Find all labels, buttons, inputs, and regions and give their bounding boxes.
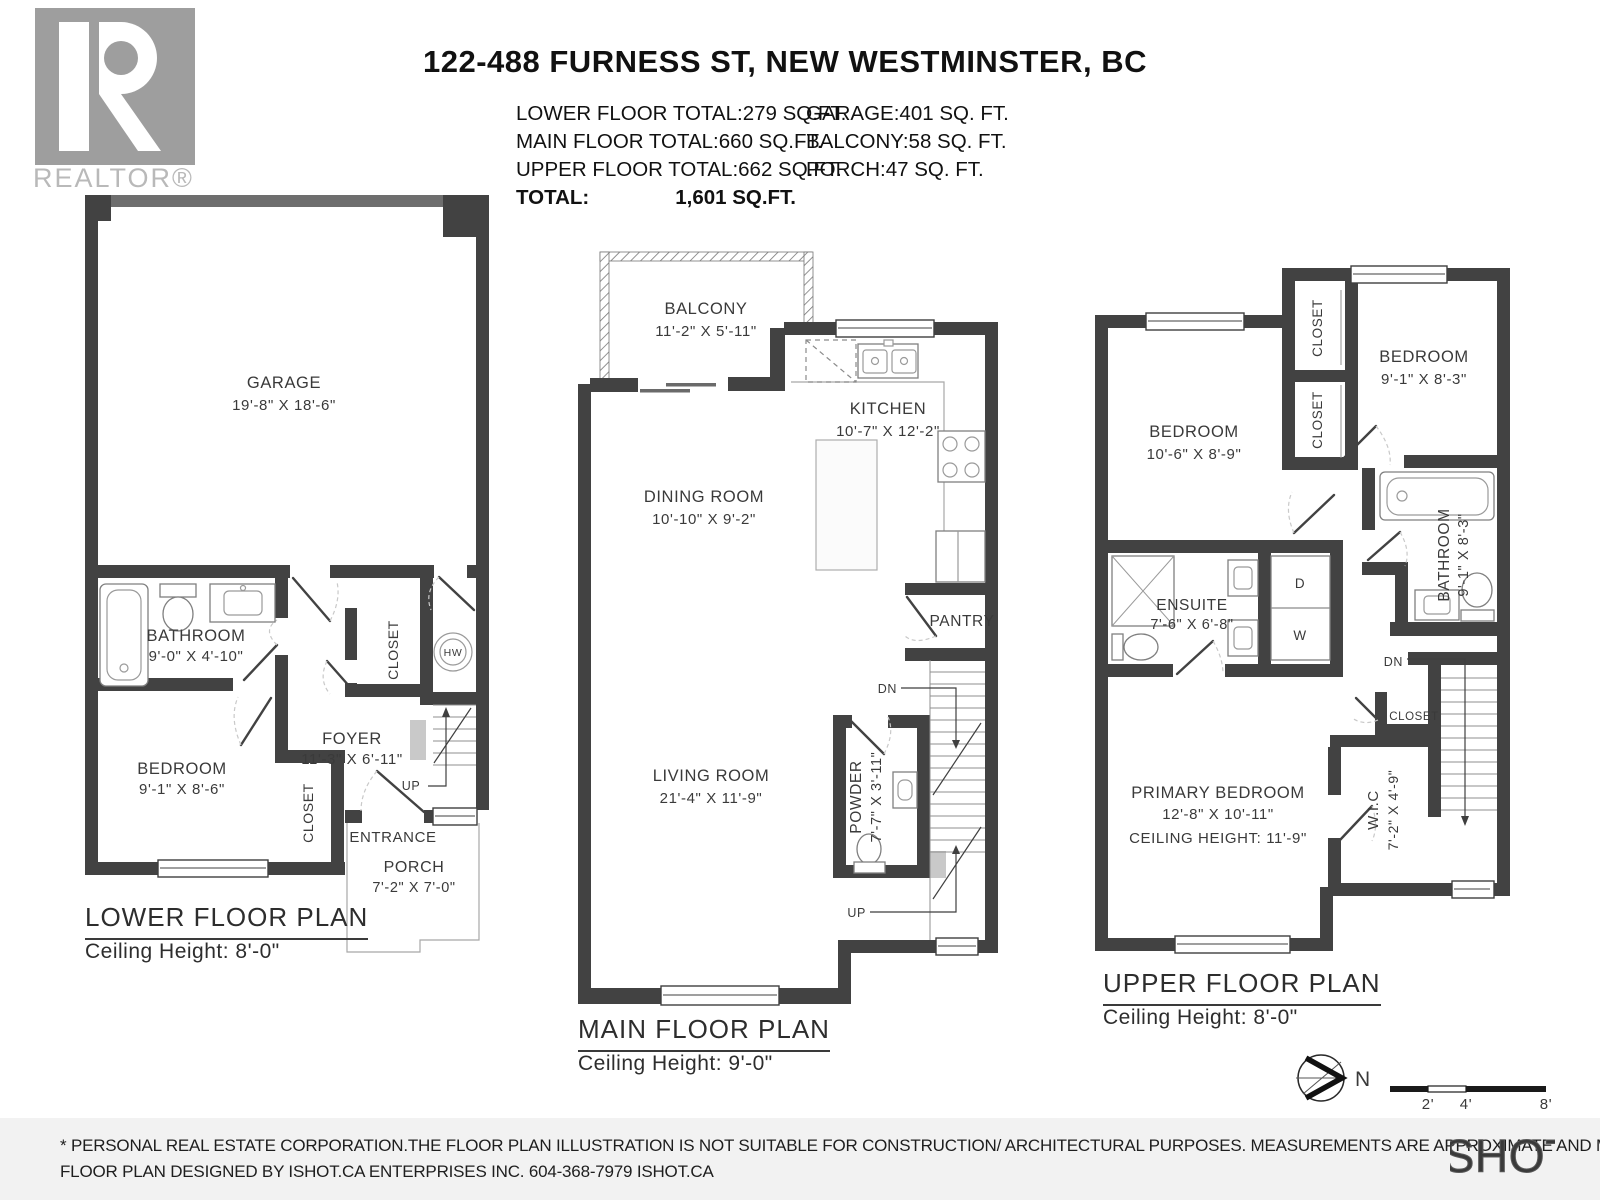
area-summary-left: LOWER FLOOR TOTAL: 279 SQ.FT. MAIN FLOOR… — [516, 100, 796, 212]
upper-floor-plan-drawing: D W BEDROOM 10'-6" X 8'-9" BEDROOM 9'-1"… — [1085, 255, 1520, 960]
dn-label: DN — [878, 682, 897, 696]
living-label: LIVING ROOM — [653, 767, 770, 785]
kitchen-island — [816, 440, 877, 570]
closet-label: CLOSET — [300, 783, 316, 843]
scale-2ft: 2' — [1422, 1096, 1434, 1112]
dryer-label: D — [1295, 576, 1305, 591]
porch-dims: 7'-2" X 7'-0" — [372, 880, 455, 896]
toilet — [160, 584, 196, 631]
ensuite-dims: 7'-6" X 6'-8" — [1150, 617, 1233, 633]
compass-icon: N — [1293, 1042, 1388, 1117]
garage-label: GARAGE — [247, 374, 321, 392]
north-label: N — [1355, 1068, 1371, 1091]
page-title: 122-488 FURNESS ST, NEW WESTMINSTER, BC — [420, 44, 1150, 80]
area-label: TOTAL: — [516, 184, 589, 212]
closet-label: CLOSET — [1310, 391, 1325, 449]
up-label: UP — [402, 779, 421, 793]
area-row: BALCONY: 58 SQ. FT. — [806, 128, 976, 156]
area-label: PORCH: — [806, 156, 886, 184]
fridge — [936, 531, 985, 582]
area-value: 1,601 SQ.FT. — [675, 184, 796, 212]
washer-label: W — [1293, 628, 1306, 643]
upper-bathroom-label: BATHROOM — [1436, 508, 1453, 601]
disclaimer-line-1: * PERSONAL REAL ESTATE CORPORATION.THE F… — [60, 1136, 1600, 1156]
kitchen-sink — [858, 340, 918, 378]
main-plan-title-block: MAIN FLOOR PLAN Ceiling Height: 9'-0" — [578, 1014, 830, 1076]
dn-label: DN — [1384, 655, 1403, 669]
upper-bathroom-dims: 9'-1" X 8'-3" — [1456, 513, 1472, 596]
area-row: PORCH: 47 SQ. FT. — [806, 156, 976, 184]
bedroom-dims: 9'-1" X 8'-6" — [139, 781, 225, 798]
scale-4ft: 4' — [1460, 1096, 1472, 1112]
laundry-stack: D W — [1271, 556, 1330, 660]
main-plan-ceiling: Ceiling Height: 9'-0" — [578, 1052, 830, 1076]
area-row: LOWER FLOOR TOTAL: 279 SQ.FT. — [516, 100, 796, 128]
entrance-label: ENTRANCE — [349, 829, 436, 846]
sink — [210, 584, 275, 622]
living-dims: 21'-4" X 11'-9" — [660, 790, 763, 807]
area-value: 47 SQ. FT. — [886, 156, 984, 184]
ensuite-label: ENSUITE — [1156, 597, 1227, 614]
lower-stairs — [410, 705, 476, 786]
realtor-logo — [35, 8, 195, 165]
area-label: UPPER FLOOR TOTAL: — [516, 156, 738, 184]
stove — [938, 431, 985, 482]
scale-8ft: 8' — [1540, 1096, 1552, 1112]
porch-label: PORCH — [384, 859, 445, 876]
area-label: GARAGE: — [806, 100, 899, 128]
primary-bedroom-label: PRIMARY BEDROOM — [1131, 784, 1304, 802]
area-value: 58 SQ. FT. — [909, 128, 1007, 156]
kitchen-label: KITCHEN — [850, 400, 927, 418]
bathroom-dims: 9'-0" X 4'-10" — [149, 648, 244, 665]
kitchen-dims: 10'-7" X 12'-2" — [836, 423, 940, 440]
up-label: UP — [847, 906, 866, 920]
disclaimer-line-2: FLOOR PLAN DESIGNED BY ISHOT.CA ENTERPRI… — [60, 1162, 714, 1182]
area-label: MAIN FLOOR TOTAL: — [516, 128, 719, 156]
dining-label: DINING ROOM — [644, 488, 764, 506]
floor-plan-page: REALTOR® 122-488 FURNESS ST, NEW WESTMIN… — [0, 0, 1600, 1200]
area-summary-right: GARAGE: 401 SQ. FT. BALCONY: 58 SQ. FT. … — [806, 100, 976, 184]
hw-label: HW — [444, 647, 463, 659]
kitchen-fixtures — [791, 340, 985, 582]
balcony-dims: 11'-2" X 5'-11" — [655, 323, 757, 340]
garage-dims: 19'-8" X 18'-6" — [232, 397, 336, 414]
area-row-total: TOTAL: 1,601 SQ.FT. — [516, 184, 796, 212]
area-row: UPPER FLOOR TOTAL: 662 SQ.FT. — [516, 156, 796, 184]
balcony-sliding-door — [640, 383, 716, 393]
upper-plan-ceiling: Ceiling Height: 8'-0" — [1103, 1006, 1381, 1030]
main-floor-plan-drawing: BALCONY 11'-2" X 5'-11" KITCHEN 10'-7" X… — [570, 245, 1010, 1010]
lower-plan-ceiling: Ceiling Height: 8'-0" — [85, 940, 368, 964]
bedroom1-dims: 10'-6" X 8'-9" — [1147, 446, 1242, 463]
area-label: LOWER FLOOR TOTAL: — [516, 100, 743, 128]
powder-label: POWDER — [848, 760, 865, 833]
upper-plan-title: UPPER FLOOR PLAN — [1103, 968, 1381, 1006]
closet-label: CLOSET — [385, 620, 401, 680]
foyer-dims: 11'-3" X 6'-11" — [301, 751, 403, 768]
primary-ceiling-height: CEILING HEIGHT: 11'-9" — [1129, 830, 1307, 847]
footer-band — [0, 1118, 1600, 1200]
ishot-logo: ISHOT — [1450, 1122, 1555, 1190]
dining-dims: 10'-10" X 9'-2" — [652, 511, 756, 528]
foyer-label: FOYER — [322, 730, 382, 748]
lower-room-labels: GARAGE 19'-8" X 18'-6" BATHROOM 9'-0" X … — [137, 374, 455, 896]
bedroom2-label: BEDROOM — [1379, 348, 1468, 366]
lower-plan-title-block: LOWER FLOOR PLAN Ceiling Height: 8'-0" — [85, 902, 368, 964]
pantry-label: PANTRY — [929, 613, 994, 630]
primary-bedroom-dims: 12'-8" X 10'-11" — [1162, 806, 1274, 823]
bedroom-label: BEDROOM — [137, 760, 226, 778]
area-row: GARAGE: 401 SQ. FT. — [806, 100, 976, 128]
wic-label: W.I.C — [1365, 790, 1382, 830]
bathroom-label: BATHROOM — [147, 627, 246, 645]
lower-plan-title: LOWER FLOOR PLAN — [85, 902, 368, 940]
lower-floor-plan-drawing: HW GARAGE 19'-8" X 18'-6" BATHROOM 9'-0"… — [60, 185, 505, 965]
bedroom2-dims: 9'-1" X 8'-3" — [1381, 371, 1467, 388]
balcony-label: BALCONY — [664, 300, 747, 318]
closet-label: CLOSET — [1389, 711, 1439, 723]
main-room-labels: BALCONY 11'-2" X 5'-11" KITCHEN 10'-7" X… — [644, 300, 995, 920]
bathtub — [100, 584, 148, 686]
closet-label: CLOSET — [1310, 299, 1325, 357]
area-row: MAIN FLOOR TOTAL: 660 SQ.FT. — [516, 128, 796, 156]
upper-plan-title-block: UPPER FLOOR PLAN Ceiling Height: 8'-0" — [1103, 968, 1381, 1030]
area-value: 401 SQ. FT. — [899, 100, 1008, 128]
scale-bar: 2' 4' 8' — [1390, 1080, 1555, 1112]
wic-dims: 7'-2" X 4'-9" — [1385, 770, 1401, 851]
powder-dims: 7'-7" X 3'-11" — [869, 752, 885, 843]
hot-water-tank-icon: HW — [434, 633, 472, 671]
bedroom1-label: BEDROOM — [1149, 423, 1238, 441]
main-plan-title: MAIN FLOOR PLAN — [578, 1014, 830, 1052]
area-label: BALCONY: — [806, 128, 909, 156]
ishot-wordmark: ISHOT — [1450, 1130, 1555, 1182]
